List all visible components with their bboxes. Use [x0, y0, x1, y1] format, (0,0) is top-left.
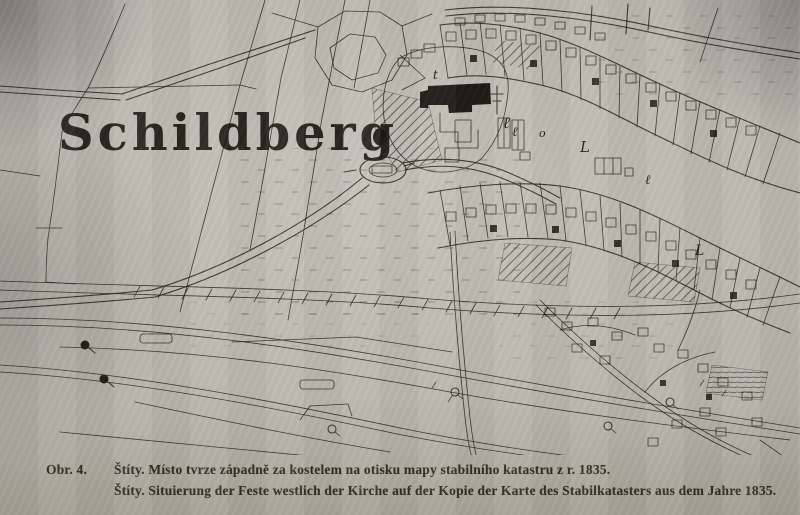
hill-contour: [272, 11, 432, 92]
cadastral-map: ℓ ℓ o L ℓ L t Schildberg: [0, 0, 800, 455]
map-letter-mark: o: [539, 127, 546, 140]
garden-hatch-upper: [492, 40, 540, 70]
garden-hatch-lower-2: [628, 262, 700, 302]
map-letter-mark: ℓ: [645, 173, 651, 188]
map-letter-mark: ℓ: [512, 125, 518, 140]
tree-icon: [328, 425, 340, 436]
figure-label: Obr. 4.: [46, 459, 90, 501]
map-title: Schildberg: [58, 103, 398, 162]
market-square-buildings: [595, 158, 633, 176]
village-hatch: [706, 365, 768, 400]
book-page-photo: ℓ ℓ o L ℓ L t Schildberg Obr. 4. Štíty. …: [0, 0, 800, 515]
caption-german: Štíty. Situierung der Feste westlich der…: [114, 480, 786, 501]
tree-icon: [81, 341, 96, 354]
tree-icon: [100, 375, 115, 388]
caption-czech: Štíty. Místo tvrze západně za kostelem n…: [114, 459, 786, 480]
tree-icon: [604, 422, 616, 433]
churchyard-walls: [440, 113, 478, 148]
map-letter-mark: L: [579, 138, 590, 156]
church-cross-icon: [491, 86, 503, 114]
meadow-texture: [180, 8, 800, 360]
map-letter-mark: t: [433, 68, 438, 82]
garden-hatch-lower-1: [498, 243, 572, 286]
figure-caption: Obr. 4. Štíty. Místo tvrze západně za ko…: [46, 459, 786, 501]
church-building: [420, 83, 491, 113]
map-letter-mark: ℓ: [503, 113, 510, 132]
map-letter-mark: L: [694, 243, 704, 259]
